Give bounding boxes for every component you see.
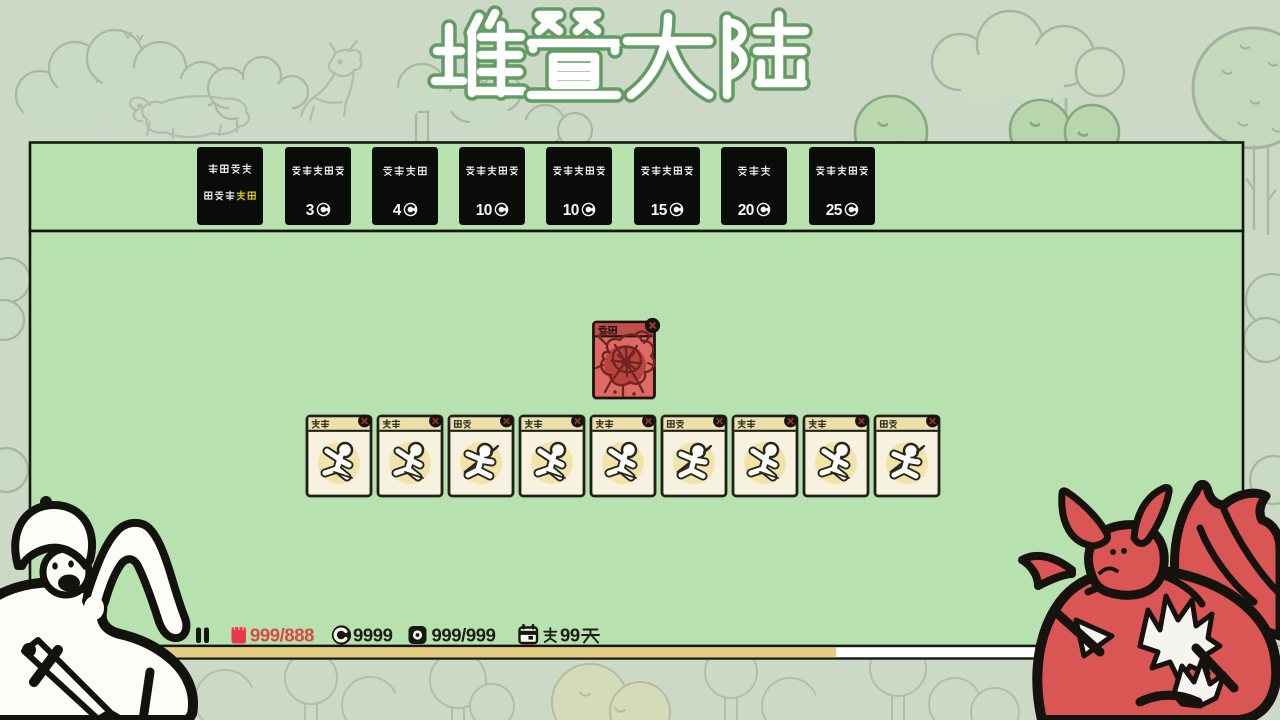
svg-text:99: 99 xyxy=(560,625,580,646)
svg-text:999/888: 999/888 xyxy=(250,625,314,646)
svg-text:4: 4 xyxy=(393,202,402,219)
svg-text:15: 15 xyxy=(651,202,668,219)
svg-text:20: 20 xyxy=(738,202,754,219)
svg-text:999/999: 999/999 xyxy=(432,625,496,646)
svg-text:3: 3 xyxy=(306,202,315,219)
svg-text:9999: 9999 xyxy=(353,625,393,646)
svg-text:10: 10 xyxy=(563,202,579,219)
svg-text:10: 10 xyxy=(476,202,492,219)
svg-text:25: 25 xyxy=(826,202,843,219)
